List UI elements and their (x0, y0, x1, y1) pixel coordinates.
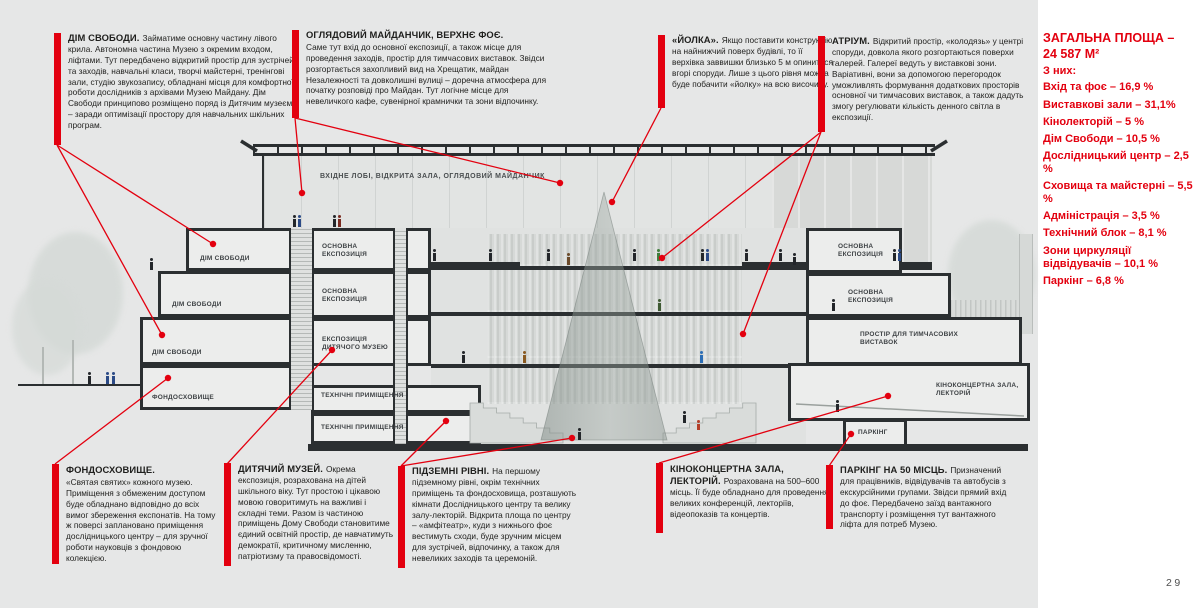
page: ВХІДНЕ ЛОБІ, ВІДКРИТА ЗАЛА, ОГЛЯДОВИЙ МА… (0, 0, 1200, 608)
annotation-title: АТРІУМ. (832, 35, 870, 46)
annotation-kinokontsertna-zala: КІНОКОНЦЕРТНА ЗАЛА, ЛЕКТОРІЙ.Розрахована… (670, 463, 832, 520)
area-summary-subtitle: З них: (1043, 65, 1195, 77)
red-marker-bar (658, 35, 665, 108)
annotation-title: «ЙОЛКА». (672, 34, 719, 45)
annotation-body: Відкритий простір, «колодязь» у центрі с… (832, 36, 1023, 122)
annotation-yolka: «ЙОЛКА».Якщо поставити конструкцію на на… (672, 34, 834, 89)
label-osnovna-right-1: ОСНОВНА ЕКСПОЗИЦІЯ (838, 243, 894, 260)
label-dim-svobody-3: ДІМ СВОБОДИ (152, 349, 202, 357)
label-osnovna-right-2: ОСНОВНА ЕКСПОЗИЦІЯ (848, 289, 904, 306)
area-summary: ЗАГАЛЬНА ПЛОЩА – 24 587 М² З них: Вхід т… (1043, 31, 1195, 288)
annotation-parking: ПАРКІНГ НА 50 МІСЦЬ.Призначений для прац… (840, 464, 1012, 530)
person-figure (547, 253, 550, 261)
tree-trunk (42, 347, 44, 385)
label-fondoskhovyshche: ФОНДОСХОВИЩЕ (152, 394, 214, 402)
person-figure (832, 303, 835, 311)
person-figure (683, 415, 686, 423)
person-figure (633, 253, 636, 261)
person-figure (462, 355, 465, 363)
person-figure (293, 219, 296, 227)
area-summary-item: Зони циркуляції відвідувачів – 10,1 % (1043, 245, 1195, 271)
person-figure (700, 355, 703, 363)
annotation-atrium: АТРІУМ.Відкритий простір, «колодязь» у ц… (832, 35, 1028, 123)
annotation-title: ПІДЗЕМНІ РІВНІ. (412, 465, 489, 476)
person-figure (893, 253, 896, 261)
person-figure (578, 432, 581, 440)
annotation-title: ОГЛЯДОВИЙ МАЙДАНЧИК, ВЕРХНЄ ФОЄ. (306, 29, 553, 41)
roof-canopy (253, 144, 935, 156)
annotation-ohliadovyi-maidanchyk: ОГЛЯДОВИЙ МАЙДАНЧИК, ВЕРХНЄ ФОЄ.Саме тут… (306, 29, 553, 107)
red-marker-bar (826, 465, 833, 529)
person-figure (697, 424, 700, 430)
annotation-body: Саме тут вхід до основної експозиції, а … (306, 42, 546, 106)
annotation-fondoskhovyshche: ФОНДОСХОВИЩЕ.«Святая святих» кожного муз… (66, 464, 218, 563)
foundation-slab (308, 444, 1028, 451)
person-figure (433, 253, 436, 261)
person-figure (745, 253, 748, 261)
red-marker-bar (52, 464, 59, 564)
area-summary-item: Технічний блок – 8,1 % (1043, 227, 1195, 240)
label-upper-foyer: ВХІДНЕ ЛОБІ, ВІДКРИТА ЗАЛА, ОГЛЯДОВИЙ МА… (320, 172, 545, 181)
label-dim-svobody-2: ДІМ СВОБОДИ (172, 301, 222, 309)
gallery-slab (431, 364, 806, 368)
person-figure (150, 262, 153, 270)
area-summary-item: Паркінг – 6,8 % (1043, 275, 1195, 288)
stair-shaft (289, 228, 314, 410)
annotation-body: «Святая святих» кожного музею. Приміщенн… (66, 477, 215, 562)
person-figure (106, 376, 109, 384)
area-summary-item: Дім Свободи – 10,5 % (1043, 133, 1195, 146)
annotation-pidzemni-rivni: ПІДЗЕМНІ РІВНІ.На першому підземному рів… (412, 465, 577, 563)
person-figure (298, 219, 301, 227)
person-figure (779, 253, 782, 261)
area-summary-item: Адміністрація – 3,5 % (1043, 210, 1195, 223)
annotation-title: ПАРКІНГ НА 50 МІСЦЬ. (840, 464, 947, 475)
annotation-dim-svobody: ДІМ СВОБОДИ.Займатиме основну частину лі… (68, 32, 296, 130)
label-parking: ПАРКІНГ (858, 429, 888, 437)
gallery-slab (431, 266, 806, 270)
person-figure (658, 303, 661, 311)
annotation-body: Окрема експозиція, розрахована на дітей … (238, 464, 393, 561)
person-figure (836, 404, 839, 412)
gallery-slab (431, 312, 806, 316)
room-dim-svobody-1 (186, 228, 292, 271)
red-marker-bar (292, 30, 299, 118)
person-figure (793, 257, 796, 265)
label-osnovna-left-1: ОСНОВНА ЕКСПОЗИЦІЯ (322, 243, 378, 260)
annotation-title: ДИТЯЧИЙ МУЗЕЙ. (238, 463, 323, 474)
red-marker-bar (54, 33, 61, 145)
annotation-title: ФОНДОСХОВИЩЕ. (66, 464, 218, 476)
annotation-dytiachyi-muzei: ДИТЯЧИЙ МУЗЕЙ.Окрема експозиція, розрахо… (238, 463, 394, 561)
person-figure (706, 253, 709, 261)
red-marker-bar (656, 463, 663, 533)
red-marker-bar (818, 36, 825, 132)
annotation-body: На першому підземному рівні, окрім техні… (412, 466, 576, 563)
label-kino: КІНОКОНЦЕРТНА ЗАЛА, ЛЕКТОРІЙ (936, 382, 1028, 399)
area-summary-item: Вхід та фоє – 16,9 % (1043, 81, 1195, 94)
label-tymchasovi: ПРОСТІР ДЛЯ ТИМЧАСОВИХ ВИСТАВОК (860, 331, 968, 348)
red-marker-bar (224, 463, 231, 566)
label-dim-svobody-1: ДІМ СВОБОДИ (200, 255, 250, 263)
page-number: 29 (1166, 577, 1183, 589)
room-fondoskhovyshche (140, 365, 292, 410)
person-figure (112, 376, 115, 384)
person-figure (489, 253, 492, 261)
area-summary-item: Кінолекторій – 5 % (1043, 116, 1195, 129)
area-summary-item: Виставкові зали – 31,1% (1043, 99, 1195, 112)
person-figure (701, 253, 704, 261)
person-figure (333, 219, 336, 227)
tree-trunk (72, 340, 74, 385)
label-dytiachyi-muzei: ЕКСПОЗИЦІЯ ДИТЯЧОГО МУЗЕЮ (322, 336, 404, 353)
red-marker-bar (398, 466, 405, 568)
person-figure (657, 253, 660, 261)
area-summary-title-line1: ЗАГАЛЬНА ПЛОЩА – (1043, 31, 1195, 47)
label-tekhnichni-2: ТЕХНІЧНІ ПРИМІЩЕННЯ (321, 424, 404, 432)
label-osnovna-left-2: ОСНОВНА ЕКСПОЗИЦІЯ (322, 288, 378, 305)
person-figure (88, 376, 91, 384)
annotation-title: ДІМ СВОБОДИ. (68, 32, 139, 43)
area-summary-title-line2: 24 587 М² (1043, 47, 1195, 63)
person-figure (338, 219, 341, 227)
room-dim-svobody-2 (158, 271, 292, 317)
label-tekhnichni-1: ТЕХНІЧНІ ПРИМІЩЕННЯ (321, 392, 404, 400)
area-summary-item: Сховища та майстерні – 5,5 % (1043, 180, 1195, 206)
person-figure (567, 257, 570, 265)
room-dim-svobody-3 (140, 317, 292, 365)
ground-line (18, 384, 140, 386)
annotation-body: Займатиме основну частину лівого крила. … (68, 33, 294, 130)
area-summary-item: Дослідницький центр – 2,5 % (1043, 150, 1195, 176)
person-figure (898, 253, 901, 261)
person-figure (523, 355, 526, 363)
